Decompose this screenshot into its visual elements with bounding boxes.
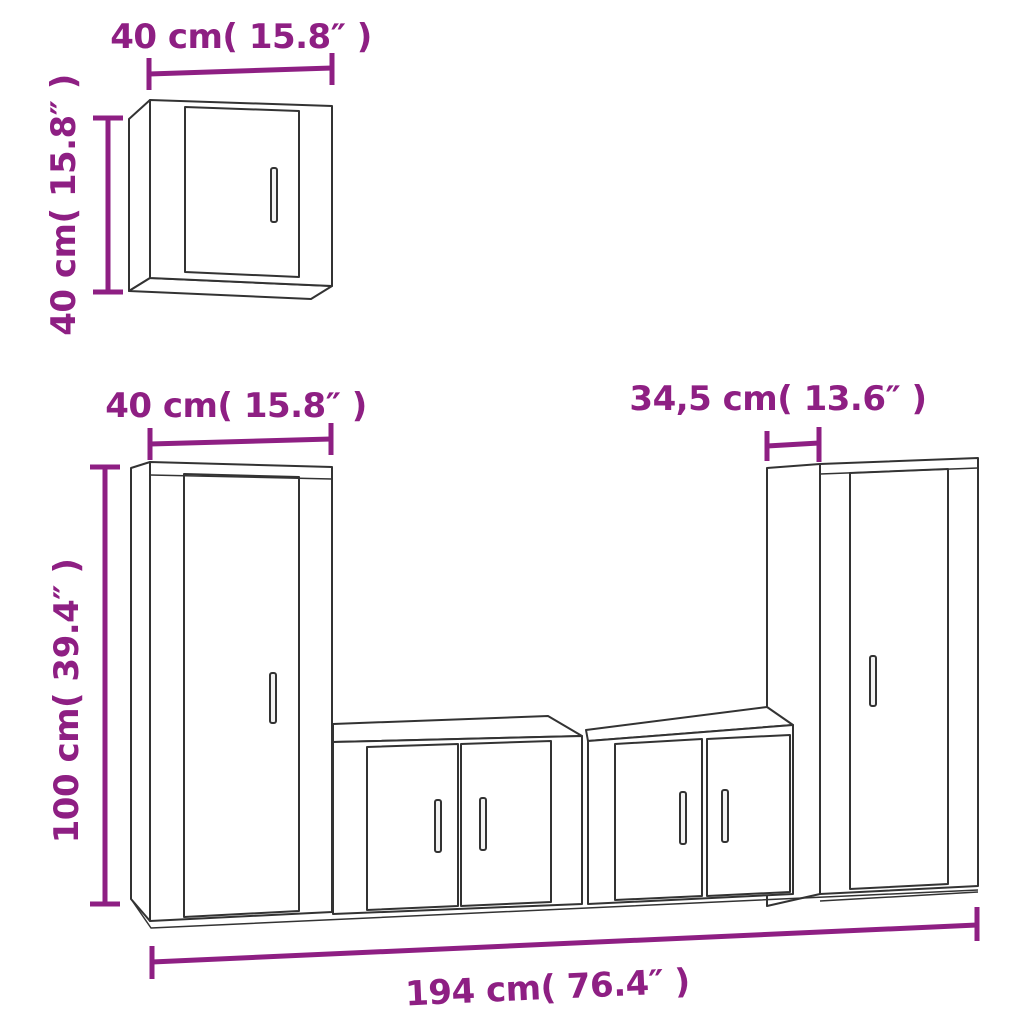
dim-tall-cabinet-width [150,423,331,460]
dim-label-small-cabinet-height: 40 cm( 15.8″ ) [44,74,84,336]
cabinet-front-face [150,462,332,921]
dim-line [149,68,332,74]
dimension-diagram: 40 cm( 15.8″ ) 40 cm( 15.8″ ) 40 cm( 15.… [0,0,1024,1024]
small-wall-cabinet [129,100,332,299]
dim-label-right-cabinet-depth: 34,5 cm( 13.6″ ) [629,379,926,419]
dim-label-total-width: 194 cm( 76.4″ ) [404,962,690,1015]
cabinet-front-face [150,100,332,286]
cabinet-front-face [820,458,978,894]
dim-line [767,443,819,446]
dim-label-tall-cabinet-height: 100 cm( 39.4″ ) [47,559,87,844]
cabinet-side-panel [131,462,150,921]
dim-right-cabinet-depth [767,427,819,462]
tall-cabinet-right [767,458,978,906]
dim-small-cabinet-height [93,118,123,292]
door-handle [680,792,686,844]
door-handle [722,790,728,842]
cabinet-side-panel [129,100,150,291]
dim-tall-cabinet-height [90,467,120,904]
bench-front-face [588,725,793,904]
door-handle [435,800,441,852]
dim-label-small-cabinet-width: 40 cm( 15.8″ ) [110,17,372,57]
door-handle [270,673,276,723]
door-handle [870,656,876,706]
tv-bench-right [586,707,793,904]
tv-bench-left [333,716,582,914]
dim-label-tall-cabinet-width: 40 cm( 15.8″ ) [105,386,367,426]
dim-line [152,925,977,962]
tall-cabinet-left [131,462,332,921]
dim-line [150,439,331,444]
dim-small-cabinet-width [149,53,332,90]
door-handle [271,168,277,222]
door-handle [480,798,486,850]
